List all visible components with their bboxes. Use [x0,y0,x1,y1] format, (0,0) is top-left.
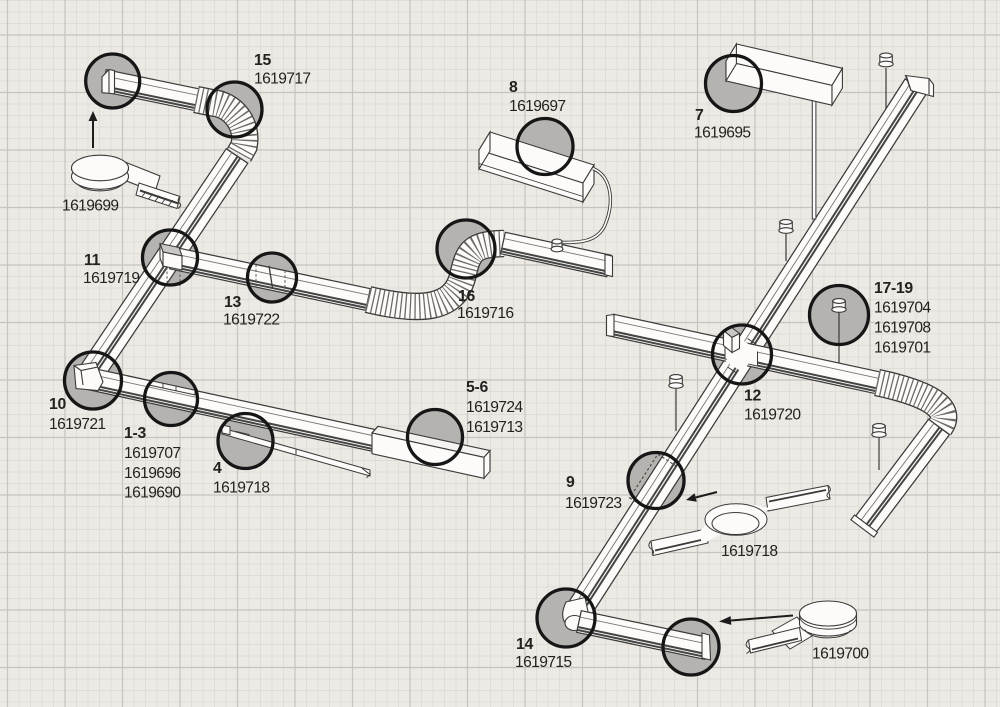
svg-text:1619719: 1619719 [83,270,140,287]
svg-text:1-3: 1-3 [124,425,146,442]
svg-text:1619697: 1619697 [509,98,566,115]
svg-text:1619720: 1619720 [744,407,801,424]
svg-text:1619716: 1619716 [457,305,514,322]
svg-text:13: 13 [224,294,241,311]
svg-text:15: 15 [254,52,271,69]
svg-text:1619707: 1619707 [124,445,181,462]
svg-text:16: 16 [458,288,475,305]
svg-text:1619696: 1619696 [124,465,181,482]
svg-text:1619699: 1619699 [62,198,119,215]
svg-text:1619695: 1619695 [694,125,751,142]
svg-text:11: 11 [84,252,101,269]
svg-text:1619708: 1619708 [874,320,931,337]
svg-text:1619718: 1619718 [213,480,270,497]
svg-text:14: 14 [516,636,533,653]
svg-text:4: 4 [213,460,222,477]
svg-text:12: 12 [744,388,761,405]
svg-text:1619700: 1619700 [812,646,869,663]
svg-text:9: 9 [566,474,575,491]
svg-text:5-6: 5-6 [466,379,488,396]
svg-text:1619717: 1619717 [254,71,311,88]
svg-text:1619713: 1619713 [466,419,523,436]
svg-text:1619690: 1619690 [124,485,181,502]
svg-text:1619722: 1619722 [223,312,280,329]
svg-text:1619721: 1619721 [49,416,106,433]
svg-text:17-19: 17-19 [874,280,913,297]
svg-text:1619704: 1619704 [874,300,931,317]
svg-text:1619724: 1619724 [466,399,523,416]
svg-text:1619723: 1619723 [565,495,622,512]
svg-text:1619718: 1619718 [721,543,778,560]
svg-text:1619715: 1619715 [515,654,572,671]
svg-text:7: 7 [695,107,704,124]
svg-text:1619701: 1619701 [874,340,931,357]
svg-text:10: 10 [49,396,66,413]
svg-text:8: 8 [509,79,518,96]
